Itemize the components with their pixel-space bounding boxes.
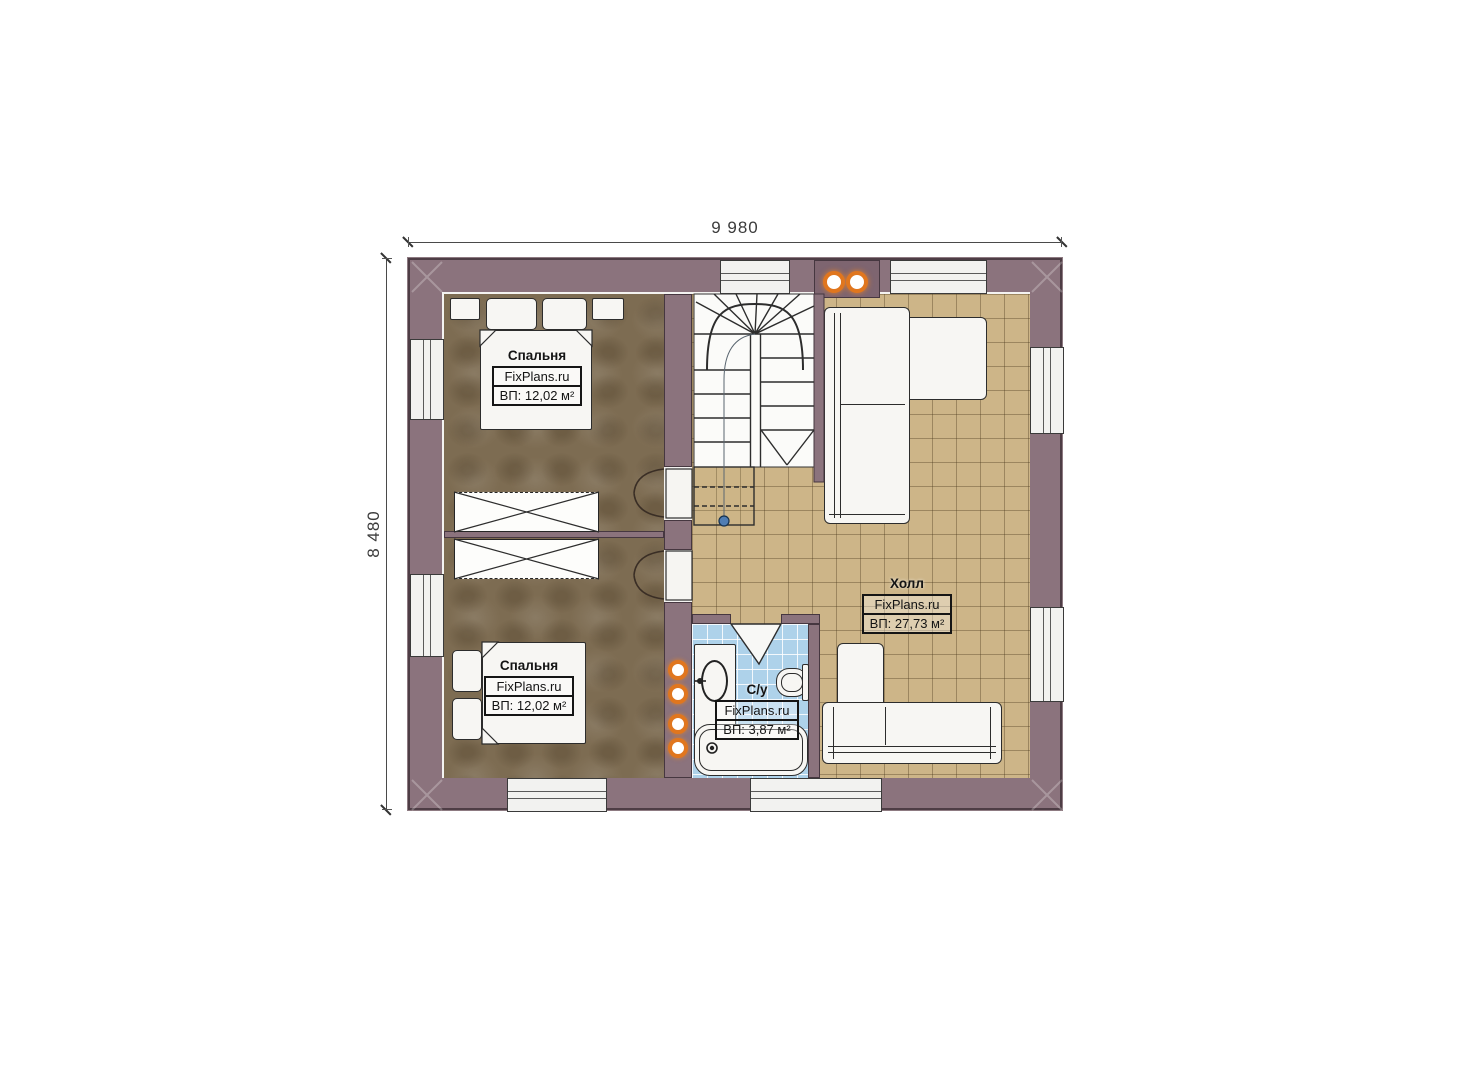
sofa-backrest-line xyxy=(828,752,996,753)
sofa-bottom xyxy=(822,702,1002,764)
sofa-backrest-line xyxy=(834,313,835,518)
wall-between-bedrooms xyxy=(444,531,664,538)
pipe-riser-icon xyxy=(668,684,688,704)
bed-pillow xyxy=(452,650,482,692)
bed-pillow xyxy=(542,298,587,330)
dimension-width-label: 9 980 xyxy=(408,218,1062,238)
window xyxy=(507,778,607,812)
room-name: С/у xyxy=(746,682,767,697)
watermark: FixPlans.ru xyxy=(486,678,573,695)
bed-pillow xyxy=(452,698,482,740)
wall-bathroom-top-right xyxy=(781,614,820,624)
room-label-box: FixPlans.ru ВП: 12,02 м² xyxy=(492,366,583,406)
room-label-bedroom1: Спальня FixPlans.ru ВП: 12,02 м² xyxy=(487,348,587,406)
sofa-top xyxy=(824,307,910,524)
pipe-riser-icon xyxy=(668,660,688,680)
dimension-width-line xyxy=(408,242,1062,243)
sofa-arm-line xyxy=(990,707,991,759)
room-label-bedroom2: Спальня FixPlans.ru ВП: 12,02 м² xyxy=(479,658,579,716)
room-area: ВП: 27,73 м² xyxy=(864,613,951,632)
sofa-cushion-line xyxy=(840,404,905,405)
sofa-cushion-line xyxy=(885,707,886,745)
room-area: ВП: 12,02 м² xyxy=(494,385,581,404)
wardrobe xyxy=(454,492,599,532)
window xyxy=(410,339,444,420)
window xyxy=(410,574,444,657)
room-label-bathroom: С/у FixPlans.ru ВП: 3,87 м² xyxy=(715,682,799,740)
dimension-endcap xyxy=(1061,237,1062,247)
watermark: FixPlans.ru xyxy=(717,702,796,719)
floor-plan-canvas: 9 980 8 480 xyxy=(0,0,1473,1080)
wall-bedrooms-hall-a xyxy=(664,294,692,467)
sofa-backrest-line xyxy=(840,313,841,518)
floor-plan: Спальня FixPlans.ru ВП: 12,02 м² Спальня… xyxy=(408,258,1062,810)
room-label-box: FixPlans.ru ВП: 3,87 м² xyxy=(715,700,798,740)
room-area: ВП: 3,87 м² xyxy=(717,719,796,738)
pipe-riser-icon xyxy=(668,738,688,758)
room-label-box: FixPlans.ru ВП: 12,02 м² xyxy=(484,676,575,716)
window xyxy=(890,260,987,294)
sofa-arm-line xyxy=(833,707,834,759)
dimension-endcap xyxy=(382,258,392,259)
watermark: FixPlans.ru xyxy=(494,368,581,385)
chimney-flue-icon xyxy=(823,271,845,293)
watermark: FixPlans.ru xyxy=(864,596,951,613)
chimney-flue-icon xyxy=(846,271,868,293)
dimension-endcap xyxy=(408,237,409,247)
nightstand xyxy=(450,298,480,320)
sofa-cushion-line xyxy=(829,514,905,515)
room-name: Спальня xyxy=(500,658,558,673)
room-area: ВП: 12,02 м² xyxy=(486,695,573,714)
bed-pillow xyxy=(486,298,537,330)
room-label-hall: Холл FixPlans.ru ВП: 27,73 м² xyxy=(857,576,957,634)
dimension-width: 9 980 xyxy=(408,218,1062,248)
window xyxy=(720,260,790,294)
room-name: Спальня xyxy=(508,348,566,363)
sofa-backrest-line xyxy=(828,746,996,747)
wall-bathroom-top-left xyxy=(692,614,731,624)
pipe-riser-icon xyxy=(668,714,688,734)
wardrobe xyxy=(454,539,599,579)
toilet-tank xyxy=(802,664,809,701)
window xyxy=(750,778,882,812)
wall-bedrooms-hall-b xyxy=(664,520,692,550)
window xyxy=(1030,607,1064,702)
wall-bathroom-right xyxy=(808,624,820,778)
dimension-height-label: 8 480 xyxy=(364,494,384,574)
room-label-box: FixPlans.ru ВП: 27,73 м² xyxy=(862,594,953,634)
dimension-height: 8 480 xyxy=(362,258,392,810)
nightstand xyxy=(592,298,624,320)
dimension-height-line xyxy=(386,258,387,810)
dimension-endcap xyxy=(382,809,392,810)
window xyxy=(1030,347,1064,434)
room-name: Холл xyxy=(890,576,924,591)
